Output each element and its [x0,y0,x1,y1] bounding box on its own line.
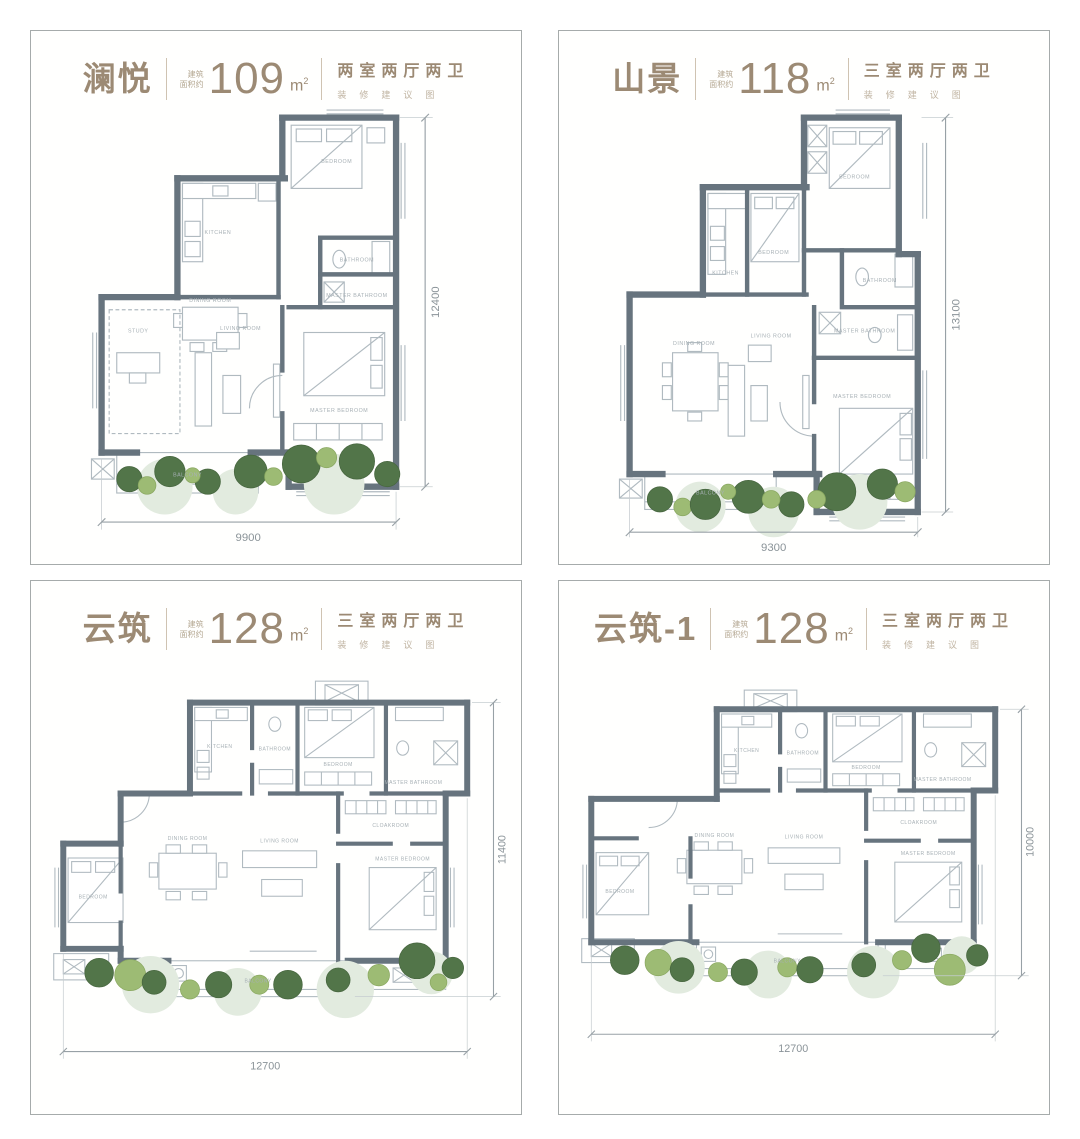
dimension-width-label: 9300 [761,542,786,554]
plan-header: 山景 建筑 面积约 118 m2 三室两厅两卫 装修建议图 [559,31,1049,103]
header-divider [321,608,322,650]
room-label-master-bathroom: MASTER BATHROOM [834,329,895,335]
plan-header: 云筑 建筑 面积约 128 m2 三室两厅两卫 装修建议图 [31,581,521,653]
room-label-living: LIVING ROOM [751,334,792,340]
room-label-balcony: BALCONY [774,959,801,965]
dimension-width-label: 12700 [250,1061,280,1073]
room-label-master-bathroom: MASTER BATHROOM [914,777,972,783]
area-value: 128 [753,610,829,647]
trees [85,943,464,1018]
area-group: 建筑 面积约 118 m2 [709,60,835,97]
decoration-note: 装修建议图 [337,638,469,651]
room-label-balcony: BALCONY [244,978,271,984]
area-unit: m2 [290,76,308,95]
dimension-width-label: 9900 [236,532,261,544]
area-unit: m2 [290,626,308,645]
room-label-bathroom: BATHROOM [340,258,374,264]
floorplan-card-shanjing: 山景 建筑 面积约 118 m2 三室两厅两卫 装修建议图 [558,30,1050,565]
room-label-bedroom: BEDROOM [324,762,353,768]
room-layout-label: 两室两厅两卫 [337,57,469,81]
area-about-label: 建筑 面积约 [709,70,733,91]
area-group: 建筑 面积约 128 m2 [180,610,309,647]
plan-title: 云筑-1 [594,612,697,647]
dimension-width-label: 12700 [778,1043,808,1055]
decoration-note: 装修建议图 [337,88,469,101]
room-label-dining: DINING ROOM [673,341,715,347]
floor-plan-yunzhu: KITCHEN BATHROOM BEDROOM MASTER BATHROOM… [37,655,515,1110]
header-divider [695,58,696,100]
header-divider [166,58,167,100]
furniture [621,110,927,521]
dimension-height-label: 10000 [1024,827,1036,857]
room-label-kitchen: KITCHEN [712,270,739,276]
room-label-living: LIVING ROOM [220,326,261,332]
floor-plan-shanjing: BEDROOM BEDROOM KITCHEN BATHROOM MASTER … [565,105,1043,560]
room-label-dining: DINING ROOM [168,836,208,842]
plan-drawing-area: KITCHEN BATHROOM BEDROOM MASTER BATHROOM… [31,653,521,1114]
room-label-master-bathroom: MASTER BATHROOM [326,293,387,299]
area-value: 128 [209,610,285,647]
room-label-master-bedroom: MASTER BEDROOM [310,408,368,414]
room-layout-label: 三室两厅两卫 [882,607,1014,631]
room-layout-label: 三室两厅两卫 [337,607,469,631]
area-about-label: 建筑 面积约 [724,620,748,641]
plan-header: 云筑-1 建筑 面积约 128 m2 三室两厅两卫 装修建议图 [559,581,1049,653]
room-label-study: STUDY [128,329,148,335]
plan-title: 云筑 [83,612,153,647]
room-label-dining: DINING ROOM [189,298,231,304]
plan-drawing-area: KITCHEN BATHROOM BEDROOM MASTER BATHROOM… [559,653,1049,1114]
header-divider [166,608,167,650]
room-label-bathroom: BATHROOM [863,278,897,284]
header-divider [710,608,711,650]
room-label-master-bathroom: MASTER BATHROOM [384,780,442,786]
floorplan-card-yunzhu: 云筑 建筑 面积约 128 m2 三室两厅两卫 装修建议图 [30,580,522,1115]
room-label-bedroom2: BEDROOM [79,895,108,901]
area-unit: m2 [816,76,834,95]
room-label-balcony: BALCONY [696,490,725,496]
plan-drawing-area: BEDROOM KITCHEN BATHROOM MASTER BATHROOM… [31,103,521,564]
room-label-kitchen: KITCHEN [734,748,759,754]
rooms-block: 三室两厅两卫 装修建议图 [862,57,996,101]
room-label-living: LIVING ROOM [785,834,824,840]
furniture [583,690,986,934]
header-divider [866,608,867,650]
dimension-height-label: 11400 [496,835,508,864]
room-label-master-bedroom: MASTER BEDROOM [833,394,891,400]
room-label-bedroom2: BEDROOM [758,250,789,256]
floor-plan-lanyue: BEDROOM KITCHEN BATHROOM MASTER BATHROOM… [37,105,515,560]
dimension-height-label: 13100 [950,299,962,331]
header-divider [321,58,322,100]
header-divider [848,58,849,100]
rooms-block: 两室两厅两卫 装修建议图 [335,57,469,101]
floorplan-card-lanyue: 澜悦 建筑 面积约 109 m2 两室两厅两卫 装修建议图 [30,30,522,565]
room-layout-label: 三室两厅两卫 [864,57,996,81]
room-label-living: LIVING ROOM [260,838,299,844]
floorplan-grid: 澜悦 建筑 面积约 109 m2 两室两厅两卫 装修建议图 [0,0,1080,1139]
room-label-bedroom2: BEDROOM [605,889,634,895]
room-label-cloakroom: CLOAKROOM [900,820,937,826]
rooms-block: 三室两厅两卫 装修建议图 [880,607,1014,651]
plan-title: 山景 [612,62,682,97]
furniture [93,110,405,495]
room-label-cloakroom: CLOAKROOM [372,823,409,829]
dimension-height-label: 12400 [430,286,442,318]
area-unit: m2 [835,626,853,645]
floor-plan-yunzhu-1: KITCHEN BATHROOM BEDROOM MASTER BATHROOM… [565,655,1043,1110]
furniture [55,681,458,951]
room-label-bedroom: BEDROOM [321,159,352,165]
room-label-master-bedroom: MASTER BEDROOM [375,856,430,862]
area-about-label: 建筑 面积约 [180,620,204,641]
room-label-balcony: BALCONY [173,473,202,479]
room-label-bedroom: BEDROOM [852,765,881,771]
plan-title: 澜悦 [83,62,153,97]
room-label-master-bedroom: MASTER BEDROOM [901,851,956,857]
plan-header: 澜悦 建筑 面积约 109 m2 两室两厅两卫 装修建议图 [31,31,521,103]
trees [647,469,915,537]
area-group: 建筑 面积约 109 m2 [180,60,309,97]
floorplan-card-yunzhu-1: 云筑-1 建筑 面积约 128 m2 三室两厅两卫 装修建议图 [558,580,1050,1115]
area-value: 118 [738,60,811,97]
room-label-dining: DINING ROOM [695,833,735,839]
area-value: 109 [209,60,285,97]
plan-drawing-area: BEDROOM BEDROOM KITCHEN BATHROOM MASTER … [559,103,1049,564]
room-label-bathroom: BATHROOM [787,751,819,757]
room-label-kitchen: KITCHEN [204,230,231,236]
area-group: 建筑 面积约 128 m2 [724,610,853,647]
decoration-note: 装修建议图 [882,638,1014,651]
room-label-bedroom: BEDROOM [839,174,870,180]
decoration-note: 装修建议图 [864,88,996,101]
area-about-label: 建筑 面积约 [180,70,204,91]
rooms-block: 三室两厅两卫 装修建议图 [335,607,469,651]
room-label-kitchen: KITCHEN [207,744,232,750]
room-label-bathroom: BATHROOM [259,746,291,752]
